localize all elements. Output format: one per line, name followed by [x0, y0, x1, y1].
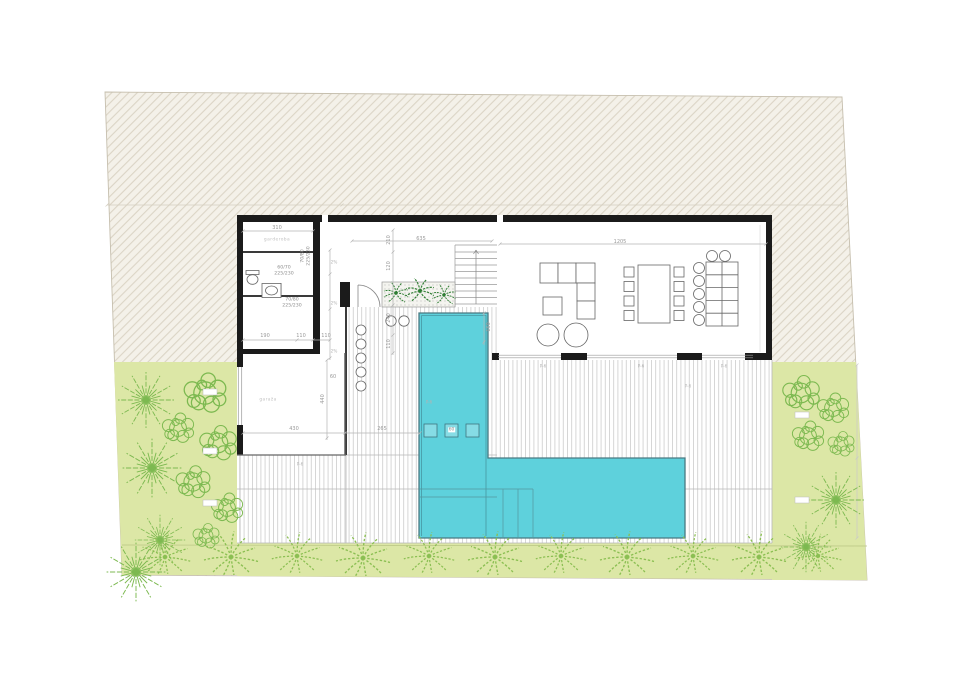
sink: [262, 284, 281, 298]
dim-label: 150: [486, 322, 492, 332]
slope-marker: 2%: [331, 348, 338, 353]
slope-marker: 2%: [331, 259, 338, 264]
dim-label: 265: [377, 426, 387, 432]
deck-left-walkway: [237, 455, 346, 543]
door-size-label: 70/80225/230: [300, 246, 311, 265]
dim-living: 1205: [614, 239, 627, 245]
dim-hall: 635: [416, 236, 426, 242]
dim-label: 110: [296, 333, 306, 339]
paving-marker: P-6: [721, 363, 728, 368]
room-label-wardrobe: garderoba: [264, 237, 290, 242]
garden-left: [114, 362, 237, 575]
dim-label: 110: [386, 339, 392, 349]
paving-marker: P-6: [297, 461, 304, 466]
dim-room-width: 310: [272, 225, 282, 231]
dim-garage-width: 430: [289, 426, 299, 432]
dim-label: 60: [330, 374, 336, 380]
room-label-garage: garaža: [259, 397, 276, 402]
pouf: [537, 324, 559, 346]
paving-marker: P-6: [638, 363, 645, 368]
dim-label: 240: [386, 313, 392, 323]
site-plan-drawing: [0, 0, 960, 679]
door-height: 225/230: [282, 303, 301, 309]
door-height: 225/230: [274, 271, 293, 277]
dim-garage-depth: 440: [320, 394, 326, 404]
door-height: 225/230: [306, 246, 312, 265]
paving-marker: P-6: [540, 363, 547, 368]
toilet: [246, 271, 259, 285]
dim-label: 110: [321, 333, 331, 339]
pool-fitting-tag: 60: [448, 427, 456, 432]
floor-plan-canvas: 310 garderoba 635 1205 60/70225/230 70/8…: [0, 0, 960, 679]
paving-marker: P-6: [426, 399, 433, 404]
pouf: [564, 323, 588, 347]
door-width: 60/70: [274, 265, 293, 271]
slope-marker: 2%: [331, 300, 338, 305]
paving-marker: P-6: [685, 383, 692, 388]
dim-label: 120: [386, 261, 392, 271]
door-size-label: 70/80225/230: [282, 297, 301, 308]
door-size-label: 60/70225/230: [274, 265, 293, 276]
dim-label: 210: [386, 235, 392, 245]
door-width: 70/80: [282, 297, 301, 303]
dim-label: 190: [260, 333, 270, 339]
